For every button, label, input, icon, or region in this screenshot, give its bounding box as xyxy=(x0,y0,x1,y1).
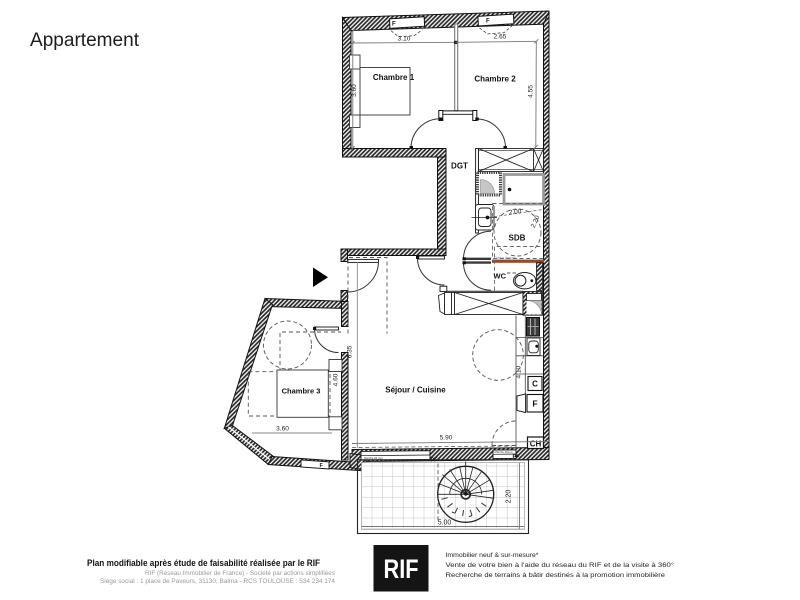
svg-text:Vente de votre bien à l'aide d: Vente de votre bien à l'aide du réseau d… xyxy=(446,561,675,569)
svg-text:RIF: RIF xyxy=(384,554,419,584)
svg-text:Plan modifiable après étude de: Plan modifiable après étude de faisabili… xyxy=(87,558,321,568)
svg-text:F: F xyxy=(392,22,396,28)
svg-text:Siège social : 1 place de Pave: Siège social : 1 place de Paveurs, 31130… xyxy=(100,578,335,585)
svg-text:Appartement: Appartement xyxy=(30,29,140,51)
svg-text:Séjour / Cuisine: Séjour / Cuisine xyxy=(385,385,446,394)
svg-text:4.55: 4.55 xyxy=(528,85,535,98)
svg-text:F: F xyxy=(486,18,490,24)
svg-text:6.35: 6.35 xyxy=(346,345,353,358)
svg-text:Marche 26mm: Marche 26mm xyxy=(495,450,514,454)
svg-text:4.60: 4.60 xyxy=(333,373,340,386)
svg-text:5.00: 5.00 xyxy=(438,520,452,527)
svg-text:Cloison placostil: Cloison placostil xyxy=(494,255,516,259)
svg-text:Chambre 3: Chambre 3 xyxy=(282,387,321,396)
svg-text:SDB: SDB xyxy=(509,234,526,243)
svg-text:Immobilier neuf & sur-mesure*: Immobilier neuf & sur-mesure* xyxy=(446,552,539,559)
svg-text:WC: WC xyxy=(494,272,507,281)
svg-text:3.60: 3.60 xyxy=(351,84,358,97)
svg-text:F: F xyxy=(532,399,537,409)
svg-text:C: C xyxy=(532,380,538,389)
svg-text:RIF (Réseau Immobilier de Fran: RIF (Réseau Immobilier de France) - Soci… xyxy=(145,570,336,577)
svg-text:Chambre 2: Chambre 2 xyxy=(474,75,516,84)
svg-text:Chambre 1: Chambre 1 xyxy=(373,73,415,82)
svg-text:3.60: 3.60 xyxy=(276,426,289,433)
svg-text:2.20: 2.20 xyxy=(506,490,513,504)
svg-text:CH: CH xyxy=(530,439,542,448)
svg-text:4.10: 4.10 xyxy=(516,365,523,378)
svg-text:2.00: 2.00 xyxy=(508,208,522,216)
svg-text:Recherche de terrains à bâtir: Recherche de terrains à bâtir destinés à… xyxy=(446,572,666,579)
svg-text:5.90: 5.90 xyxy=(440,435,453,442)
svg-text:3.10: 3.10 xyxy=(398,35,411,42)
svg-text:2.65: 2.65 xyxy=(494,33,507,40)
svg-text:DGT: DGT xyxy=(451,162,468,171)
